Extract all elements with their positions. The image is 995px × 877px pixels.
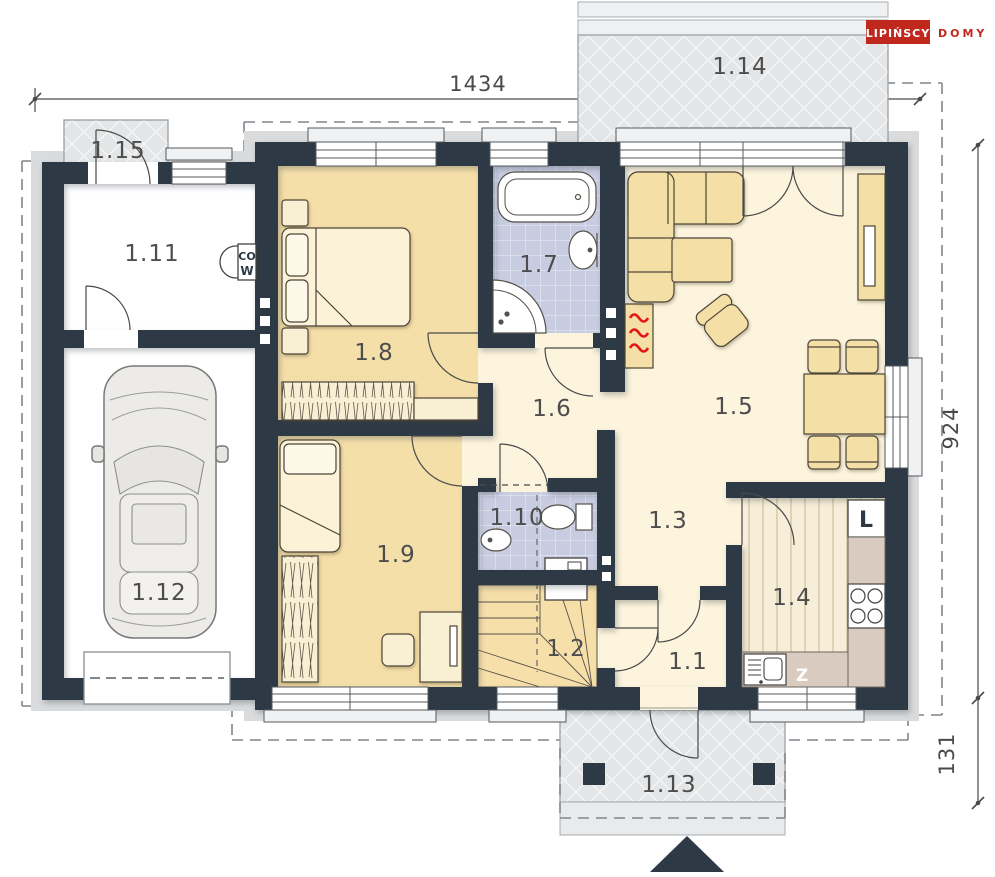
floor-plan: 1434 924 131 <box>0 0 995 877</box>
label-room-1-3: 1.3 <box>648 508 688 534</box>
window-sill <box>489 710 566 722</box>
window-1-2 <box>497 687 558 710</box>
label-room-1-4: 1.4 <box>772 585 812 611</box>
label-room-1-9: 1.9 <box>376 542 416 568</box>
wall-hall-entry-a <box>615 586 658 600</box>
boiler-label-co: CO <box>238 250 255 263</box>
label-room-1-12: 1.12 <box>131 580 186 606</box>
wing-left-wall <box>42 162 64 700</box>
wall-stairs-hall-stub <box>597 668 615 687</box>
window-sill <box>166 148 232 160</box>
wall-wc-stairs <box>478 570 600 585</box>
dining-chair <box>808 340 840 373</box>
terrace-door-sill <box>616 128 851 142</box>
toilet <box>541 504 592 530</box>
dining-chair <box>846 436 878 469</box>
bath-door-opening <box>535 333 593 348</box>
fireplace <box>625 304 653 368</box>
porch-door-opening <box>88 162 158 184</box>
dining-chair <box>846 340 878 373</box>
stove <box>848 584 885 628</box>
single-bed <box>280 440 340 552</box>
wall-bedroom-hall <box>478 383 493 420</box>
logo-brand-text: LIPIŃSCY <box>866 27 930 40</box>
window-sill <box>482 128 556 142</box>
tv-cabinet <box>858 174 885 300</box>
porch-column <box>753 763 775 785</box>
fridge-label: L <box>859 508 873 533</box>
label-room-1-11: 1.11 <box>124 241 179 267</box>
label-room-1-8: 1.8 <box>354 340 394 366</box>
garage-door <box>84 652 230 704</box>
label-room-1-7: 1.7 <box>519 252 559 278</box>
coffee-table <box>672 238 732 282</box>
dining-table <box>804 374 885 434</box>
wall-kitchen-left <box>726 545 742 687</box>
porch-column <box>583 763 605 785</box>
label-room-1-6: 1.6 <box>532 396 572 422</box>
floor-plan-page: 1434 924 131 <box>0 0 995 877</box>
label-room-1-2: 1.2 <box>546 636 586 662</box>
label-room-1-14: 1.14 <box>712 54 767 80</box>
bathtub <box>498 172 596 222</box>
boiler: CO W <box>220 244 256 280</box>
label-room-1-13: 1.13 <box>641 772 696 798</box>
kitchen-sink <box>744 654 786 685</box>
wall-stairs-hall <box>597 430 615 628</box>
window-sill <box>908 358 922 476</box>
main-left-wall <box>255 142 278 710</box>
north-arrow-icon <box>650 836 724 872</box>
wall-bath-hall-a <box>478 333 535 348</box>
window-1-7 <box>490 142 548 166</box>
terrace-door-unit <box>620 142 845 166</box>
window-sill <box>308 128 444 142</box>
dining-chair <box>808 436 840 469</box>
desk-chair <box>382 634 414 666</box>
logo-suffix-text: DOMY <box>938 27 987 40</box>
entry-door-opening <box>640 687 698 710</box>
label-room-1-10: 1.10 <box>489 505 544 531</box>
label-room-1-1: 1.1 <box>668 649 708 675</box>
wall-bedrooms-divider <box>278 420 493 436</box>
wall-wc-stub-b <box>548 478 600 492</box>
dim-porch-label: 131 <box>935 732 959 775</box>
terrace-step <box>578 20 888 35</box>
logo: LIPIŃSCY DOMY <box>866 20 988 44</box>
label-room-1-15: 1.15 <box>90 138 145 164</box>
boiler-label-w: W <box>240 264 253 278</box>
wardrobe-2 <box>282 556 318 682</box>
desk <box>420 612 462 682</box>
dishwasher-label: Z <box>796 666 808 686</box>
label-room-1-5: 1.5 <box>714 394 754 420</box>
wall-bedroom-bath <box>478 166 493 333</box>
dimension-right <box>972 139 984 809</box>
washbasin <box>569 231 597 269</box>
window-1-11 <box>172 162 226 184</box>
wc-sink <box>481 529 511 551</box>
dim-width-label: 1434 <box>449 72 506 96</box>
garage-partition-opening <box>84 330 138 348</box>
window-sill <box>750 710 864 722</box>
wall-bedroom9-stairs <box>462 486 478 687</box>
terrace-step <box>578 2 888 17</box>
wall-living-kitchen <box>726 482 885 498</box>
window-sill <box>264 710 436 722</box>
